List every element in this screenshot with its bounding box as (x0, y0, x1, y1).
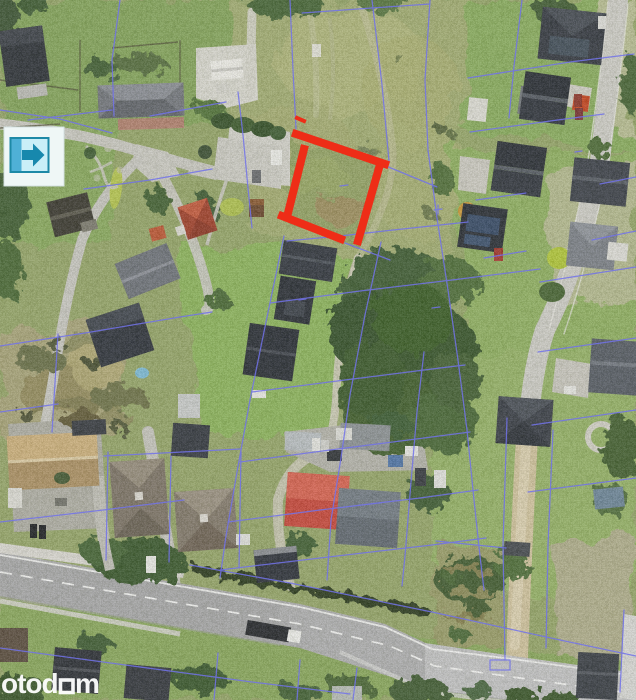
svg-text:otod: otod (1, 668, 58, 699)
svg-text:m: m (75, 668, 100, 699)
